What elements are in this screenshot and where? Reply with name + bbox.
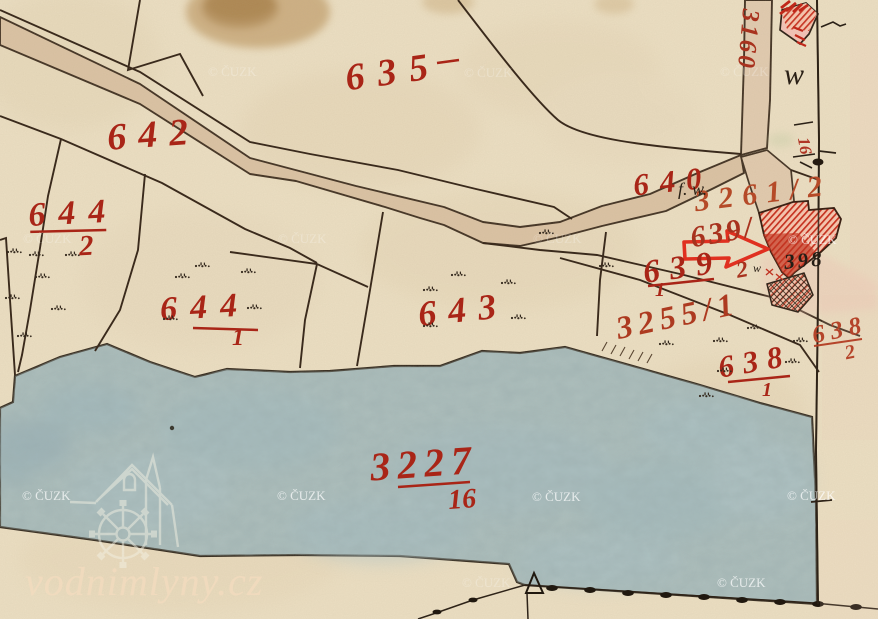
svg-text:642: 642 — [106, 110, 202, 158]
svg-text:1: 1 — [655, 279, 665, 301]
svg-text:© ČUZK: © ČUZK — [532, 489, 581, 504]
svg-text:16: 16 — [447, 483, 477, 516]
svg-text:© ČUZK: © ČUZK — [720, 64, 769, 79]
svg-text:1: 1 — [762, 379, 772, 401]
svg-text:© ČUZK: © ČUZK — [787, 488, 836, 503]
svg-text:© ČUZK: © ČUZK — [22, 488, 71, 503]
svg-text:1: 1 — [232, 325, 244, 351]
svg-text:vodnimlyny.cz: vodnimlyny.cz — [25, 559, 264, 604]
svg-text:© ČUZK: © ČUZK — [464, 65, 513, 80]
svg-text:644: 644 — [27, 192, 119, 234]
svg-text:© ČUZK: © ČUZK — [277, 488, 326, 503]
svg-text:f. w.: f. w. — [678, 179, 707, 199]
svg-text:© ČUZK: © ČUZK — [208, 64, 257, 79]
svg-text:© ČUZK: © ČUZK — [788, 232, 837, 247]
svg-text:644: 644 — [159, 286, 251, 328]
svg-text:398: 398 — [782, 246, 825, 274]
svg-text:© ČUZK: © ČUZK — [717, 575, 766, 590]
svg-text:w: w — [784, 58, 804, 91]
svg-text:© ČUZK: © ČUZK — [278, 231, 327, 246]
svg-text:© ČUZK: © ČUZK — [533, 231, 582, 246]
svg-text:3160: 3160 — [732, 7, 764, 72]
svg-text:© ČUZK: © ČUZK — [23, 231, 72, 246]
svg-text:© ČUZK: © ČUZK — [462, 575, 511, 590]
svg-text:2: 2 — [77, 230, 94, 263]
svg-text:w: w — [753, 261, 761, 275]
